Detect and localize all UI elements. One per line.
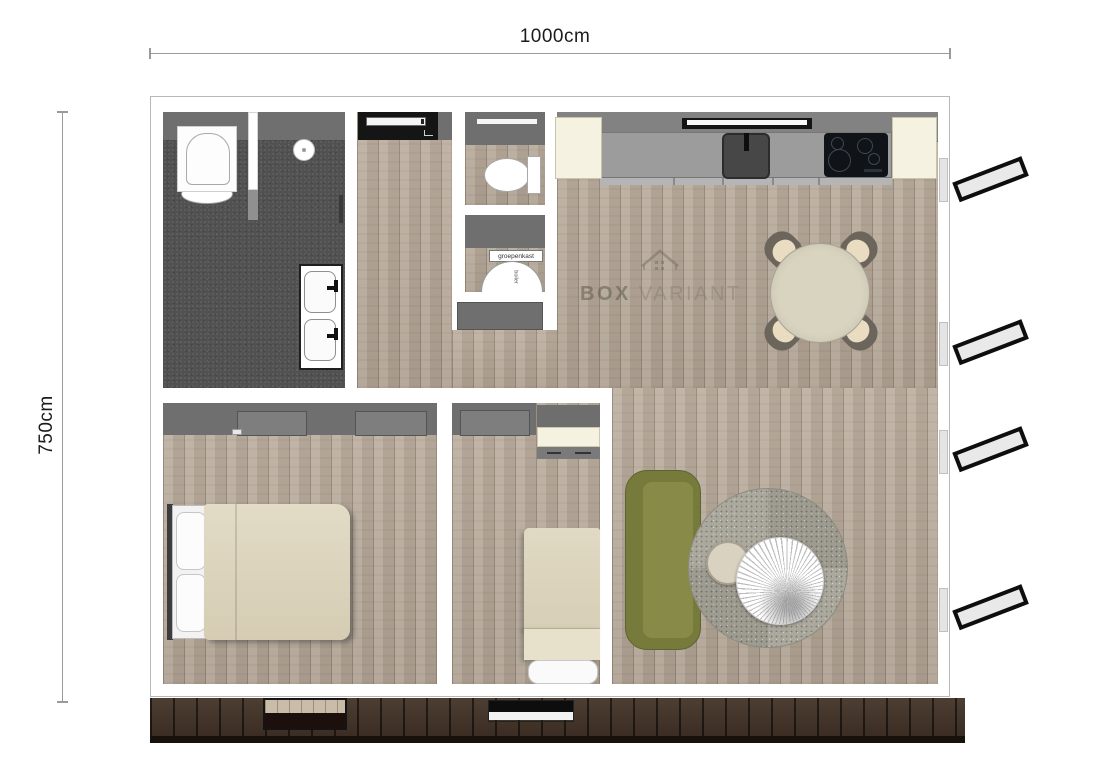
sofa-seat [643,482,693,638]
fuse-box-label: groepenkast [489,250,543,262]
width-dimension-label: 1000cm [480,26,630,48]
extractor-slot [687,120,807,125]
duvet-fold [235,504,237,640]
deck-window-sill [489,712,573,720]
technical-wall-band [465,215,545,248]
cabinet-right [892,117,937,179]
window-shutter-icon [952,426,1029,472]
height-dimension-line [62,112,63,702]
deck-door-top [265,700,345,713]
hob-burner [868,153,880,165]
window-shutter-icon [952,319,1029,365]
height-dimension-label: 750cm [36,387,56,463]
floor-plan-canvas: 1000cm 750cm gro [0,0,1100,777]
extractor-hood-icon [682,118,812,129]
window-shutter-icon [952,156,1029,202]
toilet-icon [177,126,237,192]
double-washbasin-icon [299,264,343,370]
coffee-table-icon [736,537,824,625]
partition-wall-cap [248,190,258,220]
drawer-handle [547,452,561,454]
wc-toilet-icon [484,158,530,192]
hob-controls [864,169,882,172]
brand-text-light: VARIANT [639,283,742,305]
partition-wall [248,112,258,190]
wc-window-slit [477,119,537,124]
dimension-tick [57,701,68,703]
brand-text-bold: BOX [580,283,631,305]
cabinet-left [555,117,602,179]
wc-cistern [527,156,541,194]
desk-icon [537,427,600,447]
passage-floor [452,330,557,388]
dimension-tick [57,111,68,113]
desk-drawer-front [537,447,600,459]
wall-detail [232,429,242,435]
window-shutter-icon [952,584,1029,630]
pillow [528,660,598,684]
washbasin [304,319,336,361]
dimension-tick [149,48,151,59]
entrance-door-leaf [366,117,426,126]
wc-wall-band [465,112,545,145]
kitchen-counter-edge [600,178,892,185]
drain-center [302,148,306,152]
wall-radiator [339,195,343,223]
hob-burner [831,137,844,150]
window-frame [939,322,948,366]
wardrobe-icon [355,411,427,436]
duvet [204,504,350,640]
deck-edge [150,736,965,743]
boiler-label: boiler [513,270,519,283]
deck-window-glass [489,701,573,712]
wardrobe-icon [237,411,307,436]
dimension-tick [949,48,951,59]
sink-faucet-icon [744,133,749,151]
wardrobe-icon [460,410,530,436]
hob-burner [828,149,851,172]
cabinet-division [772,178,774,185]
dining-table-icon [770,243,870,343]
induction-hob-icon [824,133,888,177]
cabinet-division [818,178,820,185]
drawer-handle [575,452,591,454]
kitchen-sink-icon [722,133,770,179]
brand-house-icon [637,246,683,282]
hall-closet [457,302,543,330]
watermark: BOX VARIANT [580,246,740,306]
deck-door-icon [263,698,347,730]
hall-wall-band [438,112,452,140]
hallway-floor [357,112,452,388]
deck-door-shadow [265,713,345,728]
door-handle-icon [421,119,424,124]
floor-drain-icon [293,139,315,161]
window-frame [939,158,948,202]
desk-back-panel [537,405,600,427]
toilet-lid-outline [186,133,230,185]
bed-blanket-fold [524,628,600,660]
window-frame [939,588,948,632]
pillow [176,574,206,632]
width-dimension-line [150,53,950,54]
faucet-icon [334,328,338,340]
deck-window-icon [488,700,574,722]
single-bed-icon [524,528,600,630]
faucet-icon [334,280,338,292]
cabinet-division [722,178,724,185]
window-frame [939,430,948,474]
washbasin [304,271,336,313]
cabinet-division [673,178,675,185]
door-swing-mark [424,130,433,136]
hob-burner [857,138,873,154]
pillow [176,512,206,570]
